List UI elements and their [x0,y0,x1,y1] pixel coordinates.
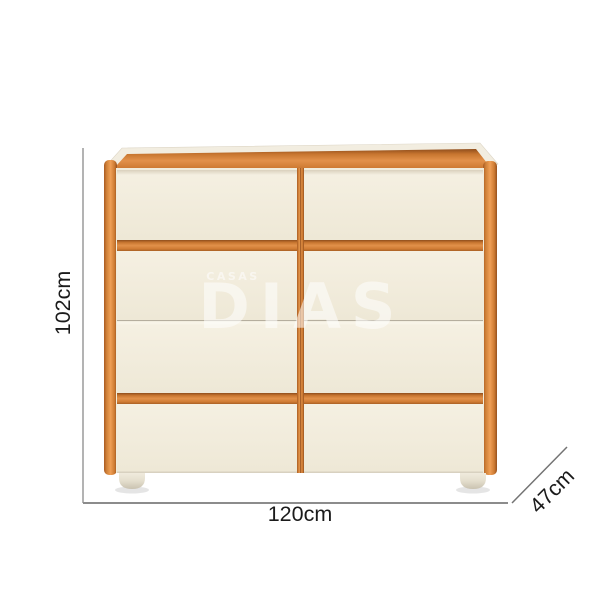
depth-dimension-label: 47cm [525,464,579,518]
product-dimension-image: CASAS DIAS 102cm 120cm 47cm [0,0,600,600]
height-dimension-label: 102cm [51,271,75,336]
right-post [483,161,497,475]
left-post [104,160,117,475]
watermark: CASAS DIAS [198,270,405,343]
left-foot [119,473,145,489]
watermark-brand-main: DIAS [198,270,405,343]
illustration-canvas: CASAS DIAS 102cm 120cm 47cm [0,0,600,600]
width-dimension-label: 120cm [268,502,333,526]
right-foot [460,473,486,489]
